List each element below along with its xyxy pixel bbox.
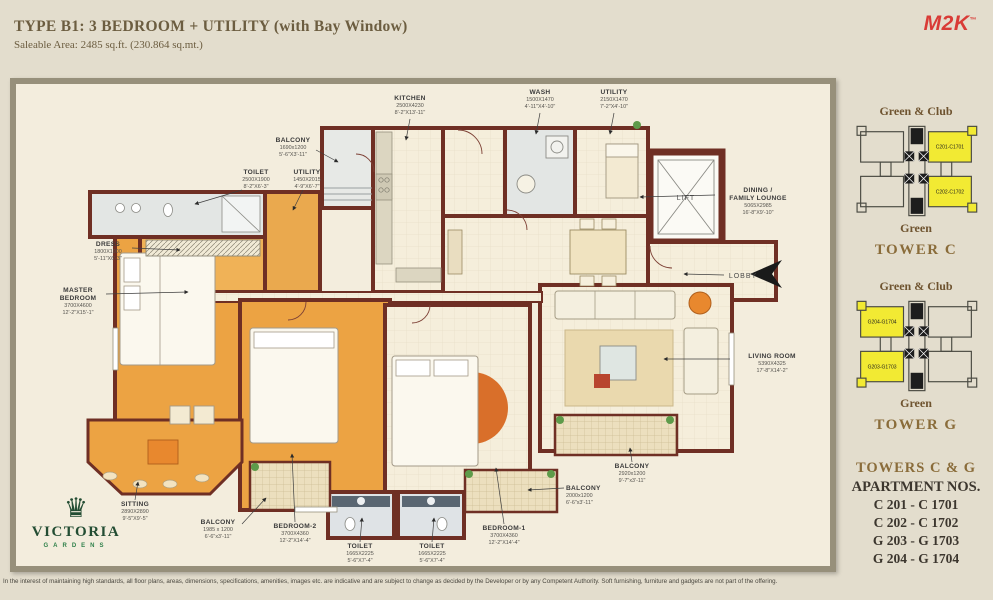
brand-text: M2K xyxy=(924,12,970,35)
wardrobe xyxy=(146,240,260,256)
svg-text:UTILITY2150X14707'-2"X4'-10": UTILITY2150X14707'-2"X4'-10" xyxy=(600,89,628,110)
sofa-long xyxy=(555,291,675,319)
kitchen-hob xyxy=(376,174,392,200)
room-balcony-top xyxy=(322,128,374,208)
page-title: TYPE B1: 3 BEDROOM + UTILITY (with Bay W… xyxy=(14,18,408,36)
svg-text:KITCHEN2500X42308'-2"X13'-11": KITCHEN2500X42308'-2"X13'-11" xyxy=(394,95,425,116)
tower-g-unit-bottom: G203-G1703 xyxy=(868,364,897,370)
apartment-range: C 201 - C 1701 xyxy=(852,496,981,514)
room-balcony-living xyxy=(555,415,677,455)
logo-subname: GARDENS xyxy=(30,543,122,549)
kitchen-counter-2 xyxy=(396,268,441,282)
floorplan-svg: BALCONY1690x12005'-6"X3'-11" KITCHEN2500… xyxy=(10,78,836,572)
rug-accent xyxy=(594,374,610,388)
svg-text:BALCONY2920x12009'-7"x3'-11": BALCONY2920x12009'-7"x3'-11" xyxy=(615,463,650,484)
svg-text:DRESS1800X19005'-11"X6'-3": DRESS1800X19005'-11"X6'-3" xyxy=(94,241,122,262)
tower-g-top-label: Green & Club xyxy=(879,279,952,294)
tower-c-title: TOWER C xyxy=(875,242,957,259)
svg-text:MASTERBEDROOM3700X460012'-2"X1: MASTERBEDROOM3700X460012'-2"X15'-1" xyxy=(60,287,97,316)
logo-name: VICTORIA xyxy=(30,524,122,541)
apartments-title: TOWERS C & G xyxy=(852,460,981,477)
svg-text:TOILET1665X22255'-6"X7'-4": TOILET1665X22255'-6"X7'-4" xyxy=(346,543,374,564)
lift-label: LIFT xyxy=(677,195,695,202)
room-balcony-b1 xyxy=(465,470,557,512)
disclaimer-text: In the interest of maintaining high stan… xyxy=(3,578,803,585)
tower-g-unit-top: G204-G1704 xyxy=(868,320,897,326)
apartment-range: G 204 - G 1704 xyxy=(852,550,981,568)
washing-machine xyxy=(546,136,568,158)
sofa-single xyxy=(684,328,718,394)
victoria-gardens-logo: ♛ VICTORIA GARDENS xyxy=(30,494,122,549)
svg-text:WASH1500X14704'-11"X4'-10": WASH1500X14704'-11"X4'-10" xyxy=(525,89,556,110)
sideboard xyxy=(448,230,462,274)
brand-logo: M2K™ xyxy=(924,12,977,36)
sidebar: Green & Club C201-C1701 C202-C1702 Green… xyxy=(842,104,990,568)
svg-text:LIVING ROOM5390X432517'-8"X14': LIVING ROOM5390X432517'-8"X14'-2" xyxy=(748,353,796,374)
svg-text:BEDROOM-13700X436012'-2"X14'-4: BEDROOM-13700X436012'-2"X14'-4" xyxy=(483,525,526,546)
sitting-table xyxy=(148,440,178,464)
tower-g-diagram: G204-G1704 G203-G1703 xyxy=(846,296,986,396)
tower-c-section: Green & Club C201-C1701 C202-C1702 Green… xyxy=(846,104,986,259)
tower-c-diagram: C201-C1701 C202-C1702 xyxy=(846,121,986,221)
svg-text:TOILET1665X22255'-6"X7'-4": TOILET1665X22255'-6"X7'-4" xyxy=(418,543,446,564)
apartments-subtitle: APARTMENT NOS. xyxy=(852,479,981,496)
tower-g-section: Green & Club G204-G1704 G203-G1703 Green… xyxy=(846,279,986,434)
tower-c-top-label: Green & Club xyxy=(879,104,952,119)
tower-g-title: TOWER G xyxy=(874,417,957,434)
tower-c-unit-bottom: C202-C1702 xyxy=(936,189,965,195)
floorplan-panel: BALCONY1690x12005'-6"X3'-11" KITCHEN2500… xyxy=(10,78,836,572)
tower-g-bottom-label: Green xyxy=(900,396,932,411)
tower-c-bottom-label: Green xyxy=(900,221,932,236)
wash-table xyxy=(517,175,535,193)
crown-icon: ♛ xyxy=(30,494,122,524)
svg-text:LOBBY: LOBBY xyxy=(729,273,757,280)
room-foyer xyxy=(443,128,505,216)
trademark: ™ xyxy=(970,17,978,24)
svg-text:SITTING2890X28909'-5"X9'-5": SITTING2890X28909'-5"X9'-5" xyxy=(121,501,149,522)
saleable-area: Saleable Area: 2485 sq.ft. (230.864 sq.m… xyxy=(14,39,408,51)
svg-text:BALCONY2000x12006'-6"x3'-11": BALCONY2000x12006'-6"x3'-11" xyxy=(566,485,601,506)
apartment-numbers-section: TOWERS C & G APARTMENT NOS. C 201 - C 17… xyxy=(852,460,981,568)
pouf xyxy=(689,292,711,314)
svg-text:BALCONY1985 x 12006'-6"x3'-11": BALCONY1985 x 12006'-6"x3'-11" xyxy=(201,519,236,540)
room-utility-mid xyxy=(265,192,320,292)
svg-text:DINING /FAMILY LOUNGE5065X2985: DINING /FAMILY LOUNGE5065X298516'-8"X9'-… xyxy=(729,187,787,216)
svg-text:UTILITY1450X20154'-9"X6'-7": UTILITY1450X20154'-9"X6'-7" xyxy=(293,169,321,190)
tower-c-unit-top: C201-C1701 xyxy=(936,145,965,151)
apartment-range: C 202 - C 1702 xyxy=(852,514,981,532)
dining-table xyxy=(570,230,626,274)
svg-text:BALCONY1690x12005'-6"X3'-11": BALCONY1690x12005'-6"X3'-11" xyxy=(276,137,311,158)
header: TYPE B1: 3 BEDROOM + UTILITY (with Bay W… xyxy=(14,18,408,51)
svg-text:BEDROOM-23700X436012'-2"X14'-4: BEDROOM-23700X436012'-2"X14'-4" xyxy=(274,523,317,544)
svg-text:TOILET2500X19008'-2"X6'-3": TOILET2500X19008'-2"X6'-3" xyxy=(242,169,270,190)
apartment-range: G 203 - G 1703 xyxy=(852,532,981,550)
